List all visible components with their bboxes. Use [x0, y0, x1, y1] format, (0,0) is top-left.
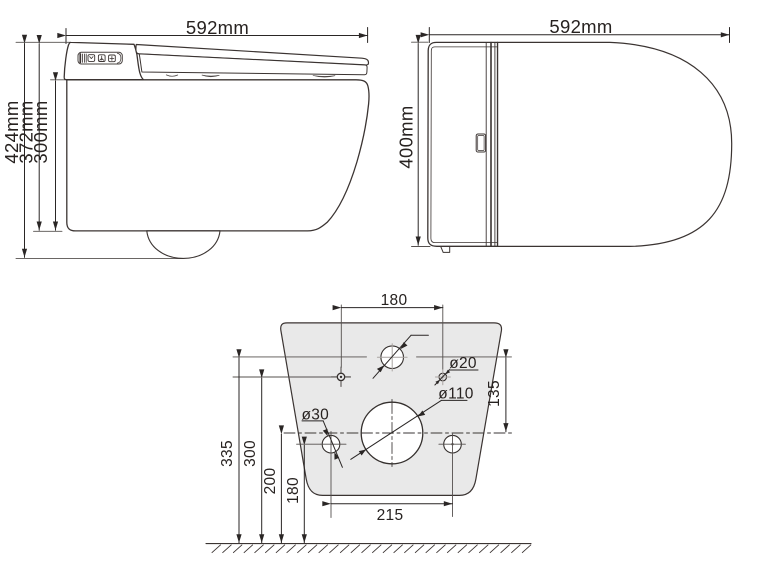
svg-text:180: 180 [381, 292, 408, 309]
svg-text:300: 300 [242, 440, 259, 467]
svg-text:592mm: 592mm [549, 16, 612, 37]
svg-text:335: 335 [219, 440, 236, 467]
svg-text:180: 180 [285, 477, 302, 504]
svg-text:215: 215 [377, 507, 404, 524]
svg-text:135: 135 [486, 380, 503, 407]
svg-text:ø20: ø20 [449, 355, 477, 372]
svg-text:200: 200 [262, 468, 279, 495]
svg-text:592mm: 592mm [186, 17, 249, 38]
svg-text:400mm: 400mm [396, 105, 417, 168]
svg-text:300mm: 300mm [30, 100, 51, 163]
